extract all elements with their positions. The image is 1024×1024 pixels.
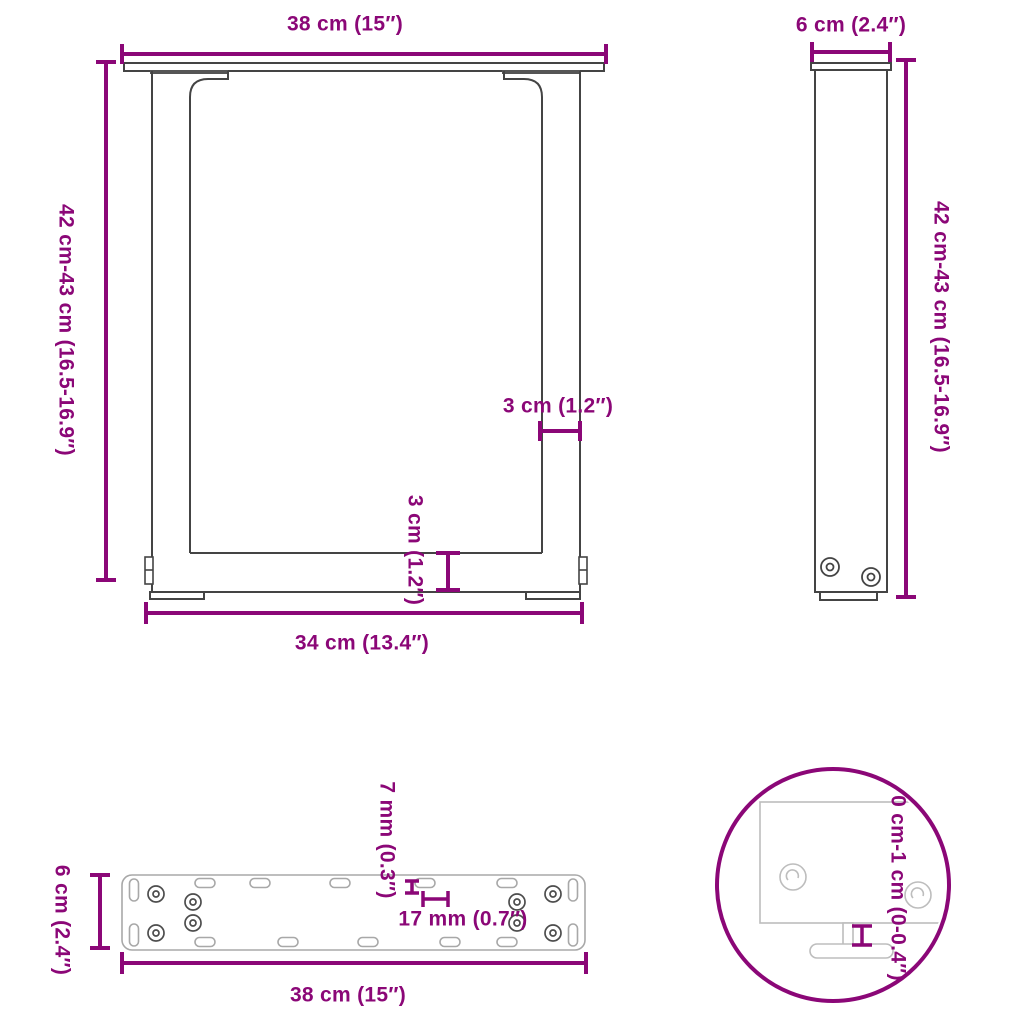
plate-width-label: 6 cm (2.4″) xyxy=(52,865,73,975)
plate-hole-diameter-label: 7 mm (0.3″) xyxy=(377,781,398,898)
detail-view-drawing xyxy=(717,769,949,1001)
dim-front-width-bottom xyxy=(146,602,582,624)
dim-front-leg-width xyxy=(540,421,580,441)
front-leg-width-label: 3 cm (1.2″) xyxy=(503,396,613,417)
side-height-label: 42 cm-43 cm (16.5-16.9″) xyxy=(931,201,952,453)
detail-adjustment-label: 0 cm-1 cm (0-0.4″) xyxy=(888,795,909,981)
dim-front-crossbar xyxy=(436,553,460,590)
front-view-drawing xyxy=(124,63,604,599)
front-width-bottom-label: 34 cm (13.4″) xyxy=(295,633,429,654)
dim-side-width xyxy=(812,42,890,62)
dim-detail-adjust xyxy=(852,926,872,945)
dim-front-height xyxy=(96,62,116,580)
dim-front-width-top xyxy=(122,44,606,64)
plate-hole-spacing-label: 17 mm (0.7″) xyxy=(398,909,527,930)
dim-side-height xyxy=(896,60,916,597)
front-height-label: 42 cm-43 cm (16.5-16.9″) xyxy=(56,204,77,456)
side-width-label: 6 cm (2.4″) xyxy=(796,15,906,36)
dimension-diagram: 38 cm (15″) 42 cm-43 cm (16.5-16.9″) 3 c… xyxy=(0,0,1024,1024)
front-width-top-label: 38 cm (15″) xyxy=(287,14,403,35)
plate-length-label: 38 cm (15″) xyxy=(290,985,406,1006)
dim-plate-width xyxy=(90,875,110,948)
side-view-drawing xyxy=(811,63,891,600)
front-crossbar-label: 3 cm (1.2″) xyxy=(405,495,426,605)
dim-plate-length xyxy=(122,952,586,974)
diagram-line-art xyxy=(0,0,1024,1024)
